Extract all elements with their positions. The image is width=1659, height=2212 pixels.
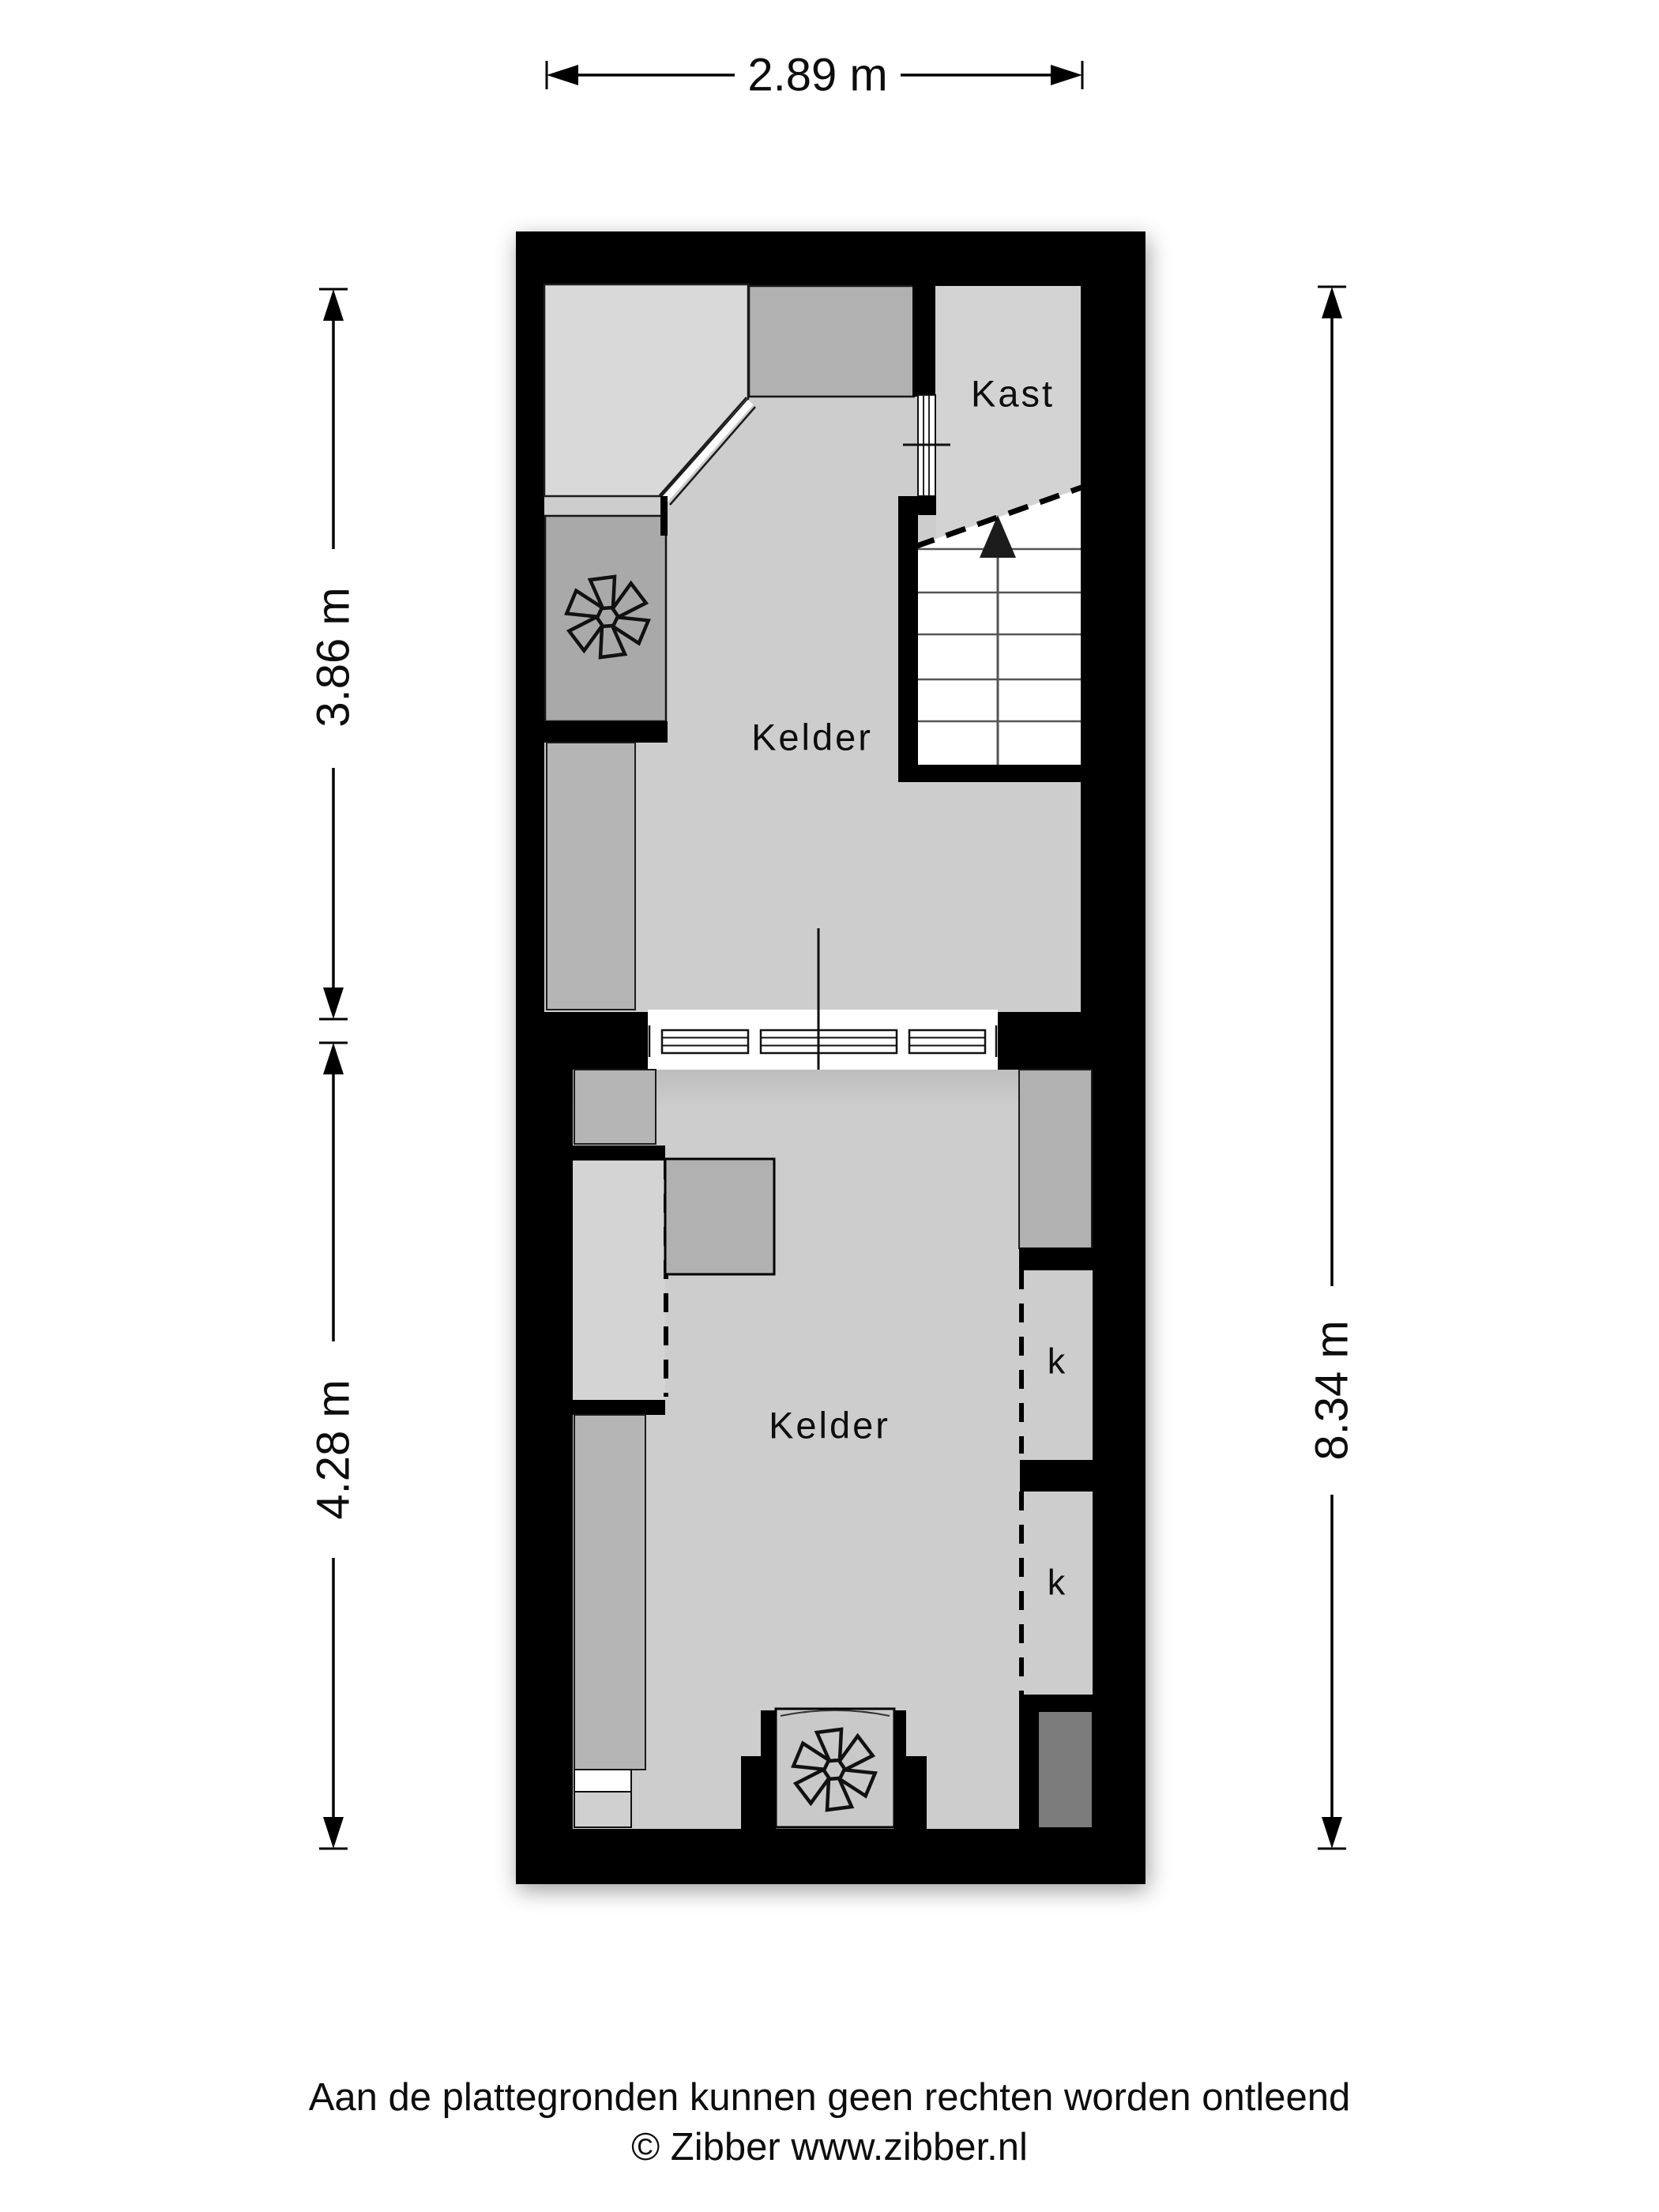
left-light-unit — [574, 1792, 631, 1827]
left-column-b — [574, 1415, 645, 1770]
dimension-upper-height: 3.86 m — [308, 289, 359, 1019]
wall-stub-left-2 — [573, 1400, 665, 1415]
left-column-upper — [547, 743, 635, 1010]
dimension-lower-height: 4.28 m — [308, 1043, 359, 1849]
wall-stub-right-2 — [1020, 1460, 1093, 1492]
fan-niche — [741, 1709, 927, 1829]
wall-stub-left-1 — [573, 1145, 665, 1161]
left-white-unit — [574, 1770, 631, 1792]
room-label-kelder-lower: Kelder — [769, 1405, 890, 1446]
dimension-upper-height-label: 3.86 m — [308, 587, 359, 727]
dimension-total-height-label: 8.34 m — [1307, 1320, 1358, 1460]
window-1 — [662, 1030, 748, 1053]
footer-credit: © Zibber www.zibber.nl — [631, 2126, 1028, 2169]
wall-stub-fan-room — [544, 721, 668, 743]
wall-stub-kast — [912, 283, 935, 397]
storage-box — [665, 1159, 774, 1274]
wall-stub-right-1 — [1019, 1248, 1093, 1270]
stair-wall-notch — [898, 496, 936, 515]
dimension-top-width: 2.89 m — [547, 50, 1082, 101]
dimension-top-width-label: 2.89 m — [747, 50, 887, 101]
floorplan-canvas: Kelder Kast Kelder k k 2.89 m 3.86 m 4.2… — [0, 0, 1659, 2212]
upper-middle-zone — [749, 286, 914, 397]
room-label-k1: k — [1048, 1341, 1066, 1382]
window-3 — [909, 1030, 985, 1053]
room-label-kelder-upper: Kelder — [751, 717, 873, 758]
footer-disclaimer: Aan de plattegronden kunnen geen rechten… — [309, 2076, 1351, 2119]
left-column-a — [574, 1070, 656, 1144]
floor-plan: Kelder Kast Kelder k k — [516, 231, 1145, 1884]
room-label-kast: Kast — [971, 373, 1055, 415]
right-column — [1019, 1070, 1092, 1248]
footer: Aan de plattegronden kunnen geen rechten… — [309, 2076, 1351, 2169]
window-band — [648, 1010, 998, 1070]
wall-tab — [660, 496, 668, 536]
shaft — [1039, 1712, 1092, 1827]
dimension-lower-height-label: 4.28 m — [308, 1379, 359, 1519]
stair-wall-left — [898, 496, 918, 782]
room-label-k2: k — [1048, 1563, 1066, 1603]
dimension-total-height: 8.34 m — [1307, 287, 1358, 1849]
floorplan-page: Kelder Kast Kelder k k 2.89 m 3.86 m 4.2… — [0, 0, 1659, 2212]
fan-room — [545, 516, 666, 721]
stair-wall-bottom — [898, 765, 1081, 782]
left-closet-floor — [573, 1161, 665, 1400]
window-2 — [761, 1030, 897, 1053]
